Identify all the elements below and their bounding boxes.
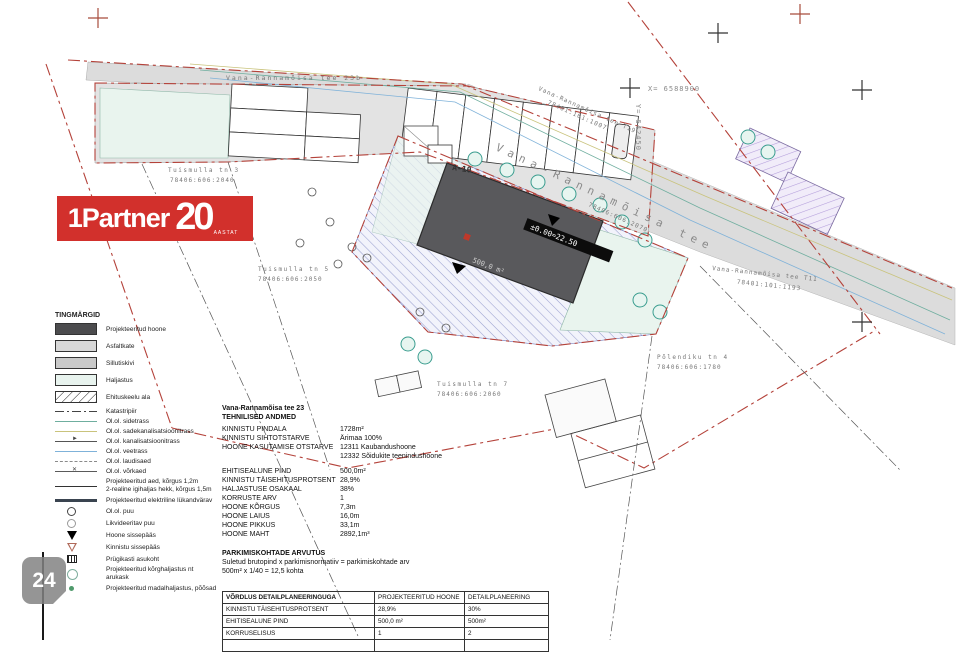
legend-item: Katastripiir	[55, 408, 240, 415]
legend-title: TINGMÄRGID	[55, 312, 240, 319]
cadastral-line-symbol	[55, 411, 97, 412]
mesh-fence-symbol: ✕	[55, 471, 97, 472]
tech-row: KORRUSTE ARV1	[222, 494, 477, 503]
legend-item: Projekteeritud elektriline lükandvärav	[55, 497, 240, 504]
comparison-table: VÕRDLUS DETAILPLANEERINGUGA PROJEKTEERIT…	[222, 591, 549, 652]
parking-calc-line: 500m² x 1/40 = 12,5 kohta	[222, 567, 477, 576]
table-header: VÕRDLUS DETAILPLANEERINGUGA	[223, 592, 375, 604]
label-cad3: 78406:606:2040	[170, 177, 235, 184]
removed-tree-symbol	[55, 519, 97, 528]
label-tuismulla7: Tuismulla tn 7	[437, 381, 509, 388]
planned-building-swatch	[55, 323, 97, 335]
label-polendiku4: Põlendiku tn 4	[657, 354, 729, 361]
board-fence-symbol	[55, 461, 97, 462]
label-cad5: 78406:606:2050	[258, 276, 323, 283]
planned-fence-symbol	[55, 486, 97, 487]
legend-item: Ol.ol. sidetrass	[55, 418, 240, 425]
tech-row: HOONE KASUTAMISE OTSTARVE12311 Kaubandus…	[222, 443, 477, 452]
technical-data-block: Vana-Rannamõisa tee 23 TEHNILISED ANDMED…	[222, 404, 477, 576]
label-cad-polendiku: 78406:606:1780	[657, 364, 722, 371]
legend-item: Projekteeritud aed, kõrgus 1,2m2-realine…	[55, 478, 240, 494]
tech-row: HALJASTUSE OSAKAAL38%	[222, 485, 477, 494]
table-header-row: VÕRDLUS DETAILPLANEERINGUGA PROJEKTEERIT…	[223, 592, 549, 604]
legend-item: Haljastus	[55, 374, 240, 386]
tech-row: KINNISTU PINDALA1728m²	[222, 425, 477, 434]
label-tuismulla3: Tuismulla tn 3	[168, 167, 240, 174]
legend: TINGMÄRGID Projekteeritud hoone Asfaltka…	[55, 312, 240, 595]
legend-item: Asfaltkate	[55, 340, 240, 352]
table-row-clipped	[223, 640, 549, 652]
label-tuismulla5: Tuismulla tn 5	[258, 266, 330, 273]
logo-20-anniversary: 20	[175, 202, 211, 232]
tech-row: HOONE LAIUS16,0m	[222, 512, 477, 521]
plot-entrance-symbol	[55, 543, 97, 552]
building-entrance-symbol	[55, 531, 97, 540]
greenery-swatch	[55, 374, 97, 386]
tech-row: 12332 Sõidukite teenindushoone	[222, 452, 477, 461]
legend-item: Ol.ol. laudisaed	[55, 458, 240, 465]
sewer-line-symbol: ►	[55, 441, 97, 442]
storm-sewer-line-symbol	[55, 431, 97, 432]
legend-item: ►Ol.ol. kanalisatsioonitrass	[55, 438, 240, 445]
parking-calc-title: PARKIMISKOHTADE ARVUTUS	[222, 549, 477, 558]
existing-tree-symbol	[55, 507, 97, 516]
logo-wordmark: 1Partner	[68, 203, 170, 234]
legend-item: Projekteeritud madalhaljastus, põõsad	[55, 585, 240, 592]
legend-item: Projekteeritud hoone	[55, 323, 240, 335]
tech-data-title: TEHNILISED ANDMED	[222, 413, 477, 422]
no-build-hatch-swatch	[55, 391, 97, 403]
logo-aastat-label: AASTAT	[214, 230, 239, 236]
label-street-23b: Vana-Rannamõisa tee 23b	[226, 74, 362, 82]
legend-item: ✕Ol.ol. võrkaed	[55, 468, 240, 475]
tech-row: HOONE KÕRGUS7,3m	[222, 503, 477, 512]
tech-row: EHITISEALUNE PIND500,0m²	[222, 467, 477, 476]
legend-item: Prügikasti asukoht	[55, 555, 240, 563]
table-row: KORRUSELISUS12	[223, 628, 549, 640]
tech-row: KINNISTU SIHTOTSTARVEÄrimaa 100%	[222, 434, 477, 443]
legend-item: Hoone sissepääs	[55, 531, 240, 540]
tech-row: KINNISTU TÄISEHITUSPROTSENT28,9%	[222, 476, 477, 485]
label-cad7: 78406:606:2060	[437, 391, 502, 398]
legend-item: Projekteeritud kõrghaljastus ntarukask	[55, 566, 240, 582]
sliding-gate-symbol	[55, 499, 97, 502]
tech-row: HOONE MAHT2892,1m³	[222, 530, 477, 539]
legend-item: Likvideeritav puu	[55, 519, 240, 528]
legend-item: Kinnistu sissepääs	[55, 543, 240, 552]
legend-item: Ol.ol. puu	[55, 507, 240, 516]
label-coord-y: Y= 542450	[634, 104, 642, 151]
legend-item: Ehituskeelu ala	[55, 391, 240, 403]
legend-item: Ol.ol. veetrass	[55, 448, 240, 455]
table-header: DETAILPLANEERING	[465, 592, 549, 604]
water-line-symbol	[55, 451, 97, 452]
table-header: PROJEKTEERITUD HOONE	[375, 592, 465, 604]
legend-item: Sillutiskivi	[55, 357, 240, 369]
table-row: KINNISTU TÄISEHITUSPROTSENT28,9%30%	[223, 604, 549, 616]
legend-item: Ol.ol. sadekanalisatsioonitrass	[55, 428, 240, 435]
parking-calc-line: Suletud brutopind x parkimisnormatiiv = …	[222, 558, 477, 567]
tech-row: HOONE PIKKUS33,1m	[222, 521, 477, 530]
plot-address: Vana-Rannamõisa tee 23	[222, 404, 477, 413]
label-coord-x: X= 6588900	[648, 85, 700, 93]
partner-logo: 1Partner 20 AASTAT	[57, 196, 253, 241]
table-row: EHITISEALUNE PIND500,0 m²500m²	[223, 616, 549, 628]
telecom-line-symbol	[55, 421, 97, 422]
asphalt-swatch	[55, 340, 97, 352]
paving-swatch	[55, 357, 97, 369]
photo-count-badge[interactable]: 24	[22, 557, 66, 604]
